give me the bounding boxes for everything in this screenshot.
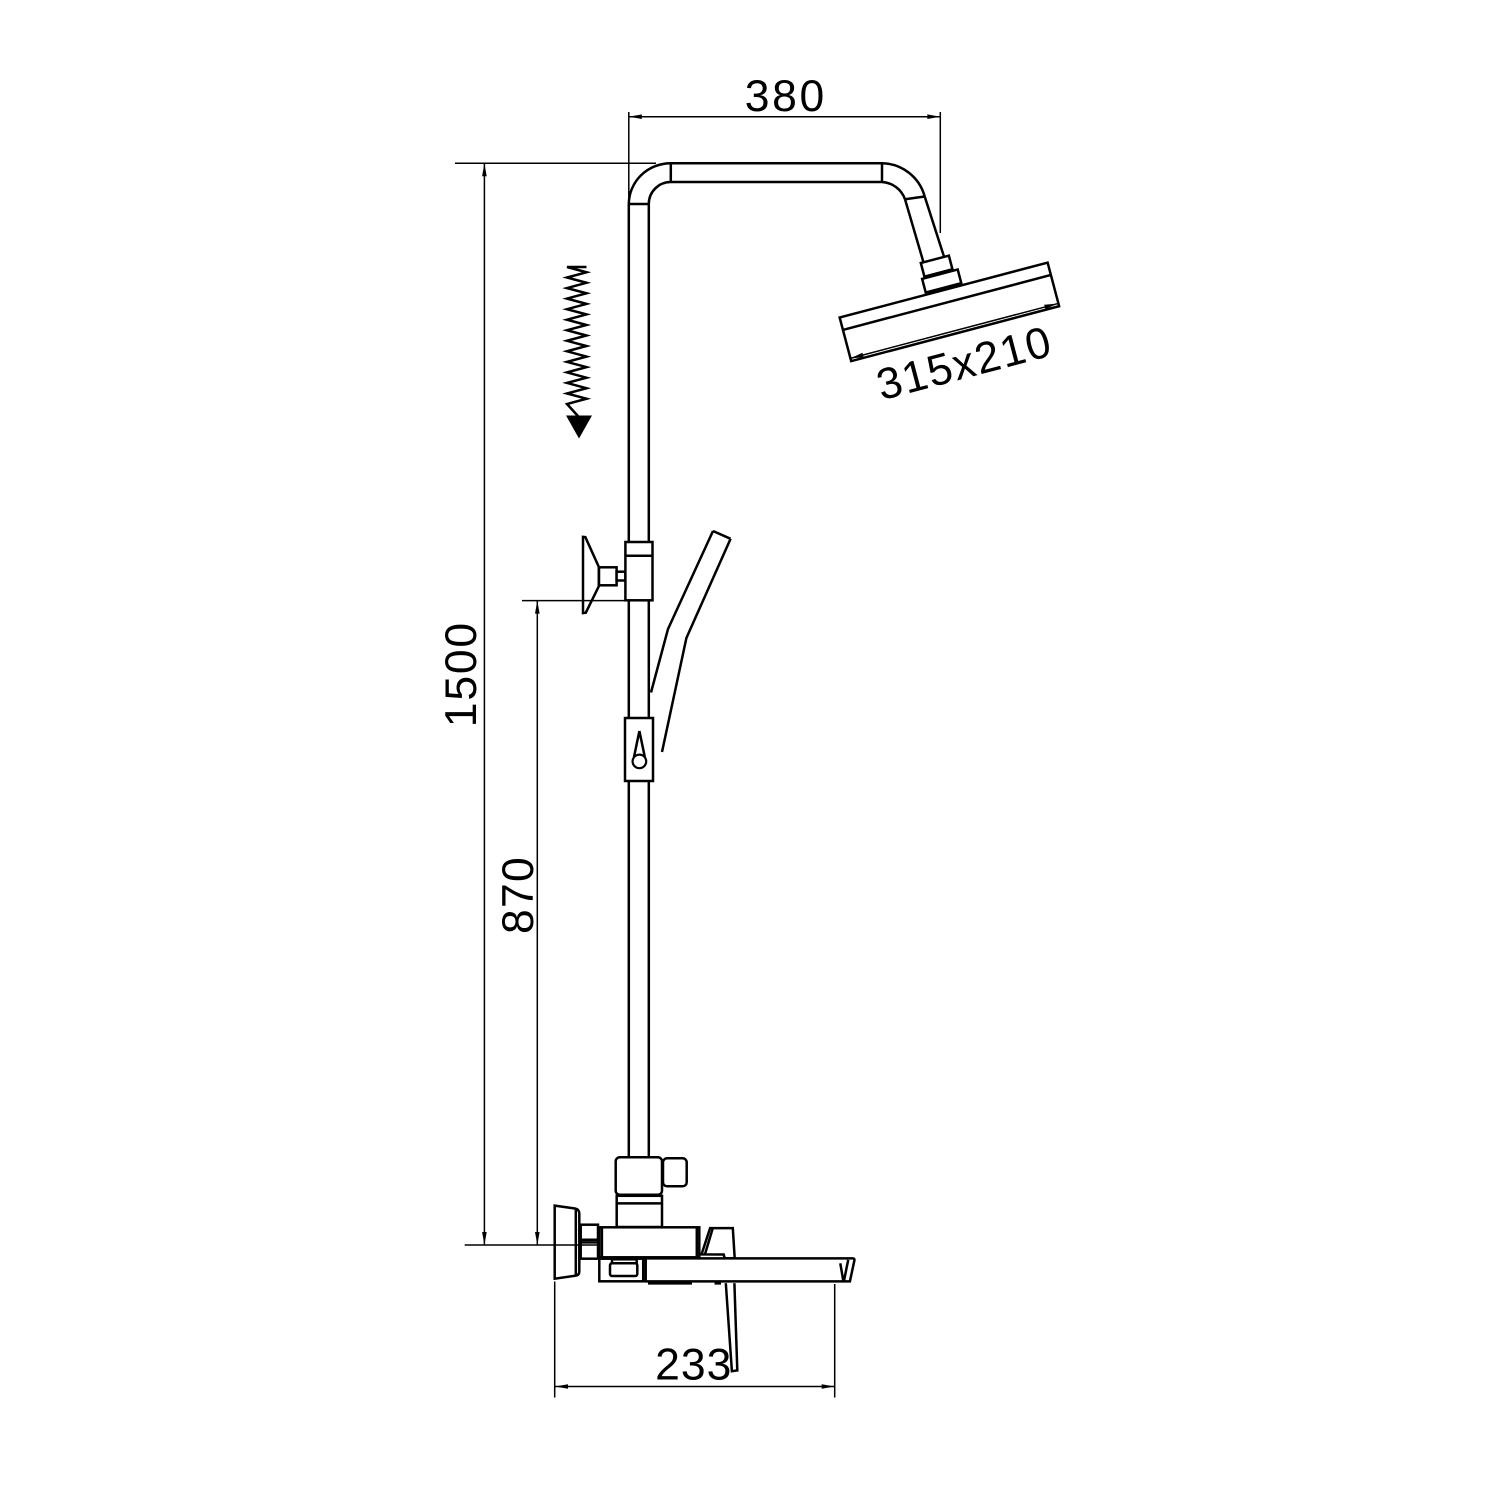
- svg-text:380: 380: [745, 72, 827, 121]
- svg-text:233: 233: [655, 1341, 732, 1390]
- svg-text:1500: 1500: [437, 621, 486, 727]
- svg-text:870: 870: [494, 856, 543, 934]
